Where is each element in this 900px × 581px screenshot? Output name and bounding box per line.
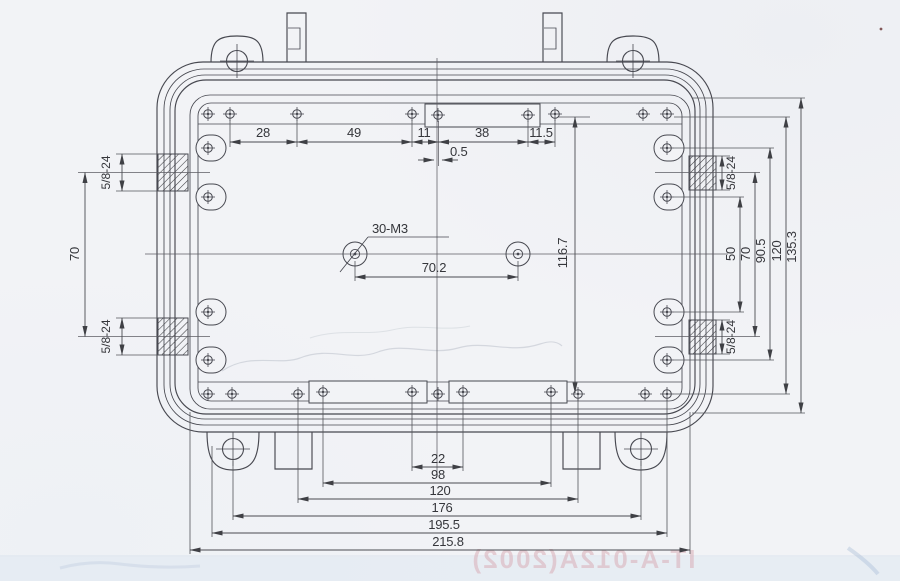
thread-label-left-top: 5/8-24 xyxy=(99,155,113,189)
screw-hole xyxy=(201,107,215,121)
hole-callout-label: 30-M3 xyxy=(372,221,408,236)
centerlines xyxy=(78,58,760,474)
dim-label-135-3: 135.3 xyxy=(784,231,799,263)
ear-hole xyxy=(216,432,250,466)
wall-outline xyxy=(175,80,695,414)
bleedthrough-sketch-line xyxy=(310,326,470,338)
ear-hole xyxy=(220,44,254,78)
top-tab-notch xyxy=(288,28,300,49)
bleedthrough-watermark: IT-A-012A(2002) xyxy=(470,544,695,574)
dim-label-0-5: 0.5 xyxy=(450,144,467,159)
screw-hole xyxy=(223,107,237,121)
dim-label-215-8: 215.8 xyxy=(432,534,464,549)
screw-hole xyxy=(201,387,215,401)
screw-hole xyxy=(638,387,652,401)
paper-speck xyxy=(880,28,883,31)
bottom-tab xyxy=(563,432,600,469)
dim-label-38: 38 xyxy=(475,125,489,140)
dim-label-120-right: 120 xyxy=(769,240,784,261)
dim-label-195-5: 195.5 xyxy=(428,517,460,532)
screw-hole xyxy=(660,387,674,401)
bleedthrough-sketch-line xyxy=(222,342,562,371)
screw-hole xyxy=(548,107,562,121)
top-tab-notch xyxy=(544,28,556,49)
dim-label-176: 176 xyxy=(431,500,452,515)
left-thread-ticks xyxy=(116,154,162,355)
dim-label-70-right: 70 xyxy=(738,247,753,261)
thread-label-right-top: 5/8-24 xyxy=(724,156,738,190)
dim-label-98: 98 xyxy=(431,467,445,482)
bottom-tab xyxy=(275,432,312,469)
dim-label-70-2: 70.2 xyxy=(422,260,447,275)
dim-label-116-7: 116.7 xyxy=(555,238,570,269)
thread-label-right-bottom: 5/8-24 xyxy=(724,320,738,354)
screw-hole xyxy=(571,387,585,401)
screw-hole xyxy=(431,387,445,401)
ear-hole xyxy=(624,432,658,466)
dim-label-120: 120 xyxy=(429,483,450,498)
dim-label-22: 22 xyxy=(431,451,445,466)
screw-hole xyxy=(636,107,650,121)
thread-port-hatch xyxy=(689,320,716,354)
enclosure-drawing: IT-A-012A(2002) xyxy=(0,0,900,581)
dim-label-28: 28 xyxy=(256,125,270,140)
dim-label-11: 11 xyxy=(417,125,430,140)
screw-hole xyxy=(660,107,674,121)
screw-hole xyxy=(290,107,304,121)
dim-label-90-5: 90.5 xyxy=(753,239,768,264)
dim-label-70-left: 70 xyxy=(67,247,82,261)
top-tab xyxy=(287,13,306,62)
thread-label-left-bottom: 5/8-24 xyxy=(99,319,113,353)
scan-blue-band xyxy=(0,557,900,581)
top-tab xyxy=(543,13,562,62)
dim-label-50: 50 xyxy=(723,247,738,261)
ear-hole xyxy=(616,44,650,78)
screw-hole xyxy=(291,387,305,401)
thread-port-hatch xyxy=(689,156,716,190)
mounting-slots xyxy=(309,104,567,403)
screw-hole xyxy=(405,107,419,121)
cavity-outline xyxy=(198,103,682,401)
screw-hole xyxy=(225,387,239,401)
dim-label-11-5: 11.5 xyxy=(529,125,553,140)
dim-label-49: 49 xyxy=(347,125,361,140)
scanned-drawing-page: IT-A-012A(2002) xyxy=(0,0,900,581)
